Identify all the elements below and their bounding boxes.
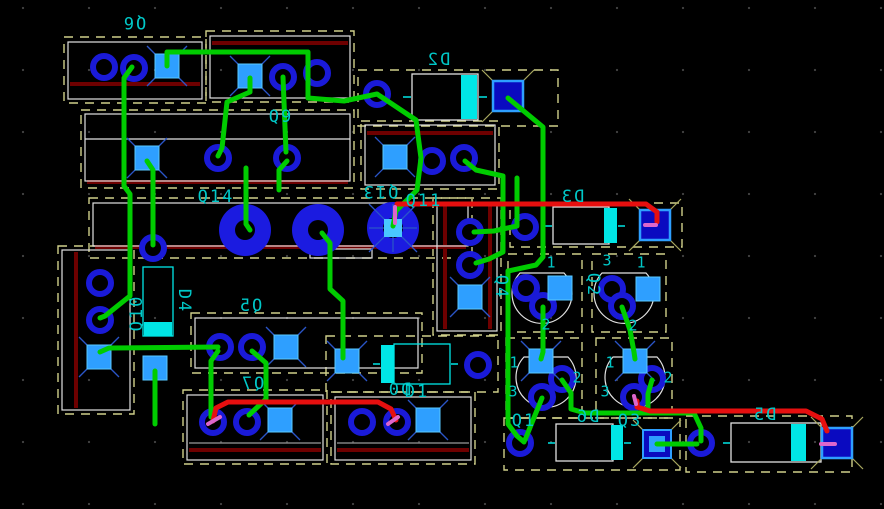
pin-number: 1	[605, 354, 616, 372]
pcb-editor-canvas[interactable]: Q6D2Q9Q14Q13Q11D3Q10D4Q5Q7D0D1Q4Q2Q1Q3D6…	[0, 0, 884, 509]
pad-square[interactable]	[274, 335, 298, 359]
trace-green[interactable]	[218, 78, 250, 156]
diode-cathode-band	[381, 345, 394, 383]
ref-label-D3: D3	[560, 187, 584, 207]
ratsnest-magenta[interactable]	[634, 396, 636, 404]
pad-square[interactable]	[383, 145, 407, 169]
pad-round[interactable]	[93, 56, 115, 78]
ref-label-Q1: Q1	[512, 411, 536, 431]
diode-body[interactable]	[556, 424, 613, 461]
ref-label-Q11: Q11	[406, 191, 443, 211]
pin-number: 1	[509, 354, 520, 372]
ref-label-Q14: Q14	[198, 187, 235, 207]
ref-label-D1: D1	[405, 382, 429, 402]
pad-square[interactable]	[268, 408, 292, 432]
ref-label-Q5: Q5	[238, 296, 262, 316]
pin-number: 3	[600, 383, 611, 401]
pad-square[interactable]	[636, 277, 660, 301]
diode-body[interactable]	[553, 207, 609, 244]
pin-number: 3	[508, 383, 519, 401]
ref-label-Q6: Q6	[122, 12, 146, 32]
ref-label-Q9: Q9	[269, 107, 293, 127]
pin-number: 2	[663, 369, 674, 387]
trace-green[interactable]	[100, 347, 218, 352]
ref-label-D4: D4	[174, 289, 194, 313]
pad-round[interactable]	[421, 150, 443, 172]
diode-cathode-band	[791, 424, 806, 461]
pad-square[interactable]	[548, 276, 572, 300]
pin-number: 1	[636, 254, 647, 272]
diode-cathode-band	[144, 322, 172, 336]
diode-cathode-band	[461, 75, 477, 119]
ref-label-Q7: Q7	[240, 374, 264, 394]
ref-label-D6: D6	[575, 407, 599, 427]
diode-body[interactable]	[394, 344, 450, 384]
ref-label-D2: D2	[426, 50, 450, 70]
trace-green[interactable]	[279, 161, 287, 190]
pin-number: 2	[572, 369, 583, 387]
pin-number: 3	[602, 252, 613, 270]
ref-label-Q10: Q10	[127, 295, 147, 332]
pin-number: 2	[628, 317, 639, 335]
ref-label-Q4: Q4	[491, 275, 511, 299]
pad-round[interactable]	[351, 411, 373, 433]
pin-number: 1	[546, 254, 557, 272]
ref-label-Q3: Q3	[618, 411, 642, 431]
pin-number: 2	[541, 316, 552, 334]
ref-label-Q2: Q2	[583, 273, 603, 297]
pad-square[interactable]	[416, 408, 440, 432]
ref-label-D5: D5	[752, 405, 776, 425]
trace-green[interactable]	[648, 380, 652, 412]
pad-round[interactable]	[89, 272, 111, 294]
ref-label-Q13: Q13	[362, 181, 399, 201]
pad-square[interactable]	[458, 285, 482, 309]
pad-square[interactable]	[335, 349, 359, 373]
pad-round[interactable]	[467, 354, 489, 376]
pcb-board: Q6D2Q9Q14Q13Q11D3Q10D4Q5Q7D0D1Q4Q2Q1Q3D6…	[0, 0, 884, 509]
pad-square[interactable]	[135, 146, 159, 170]
diode-body[interactable]	[731, 423, 821, 462]
diode-cathode-band	[604, 208, 617, 243]
